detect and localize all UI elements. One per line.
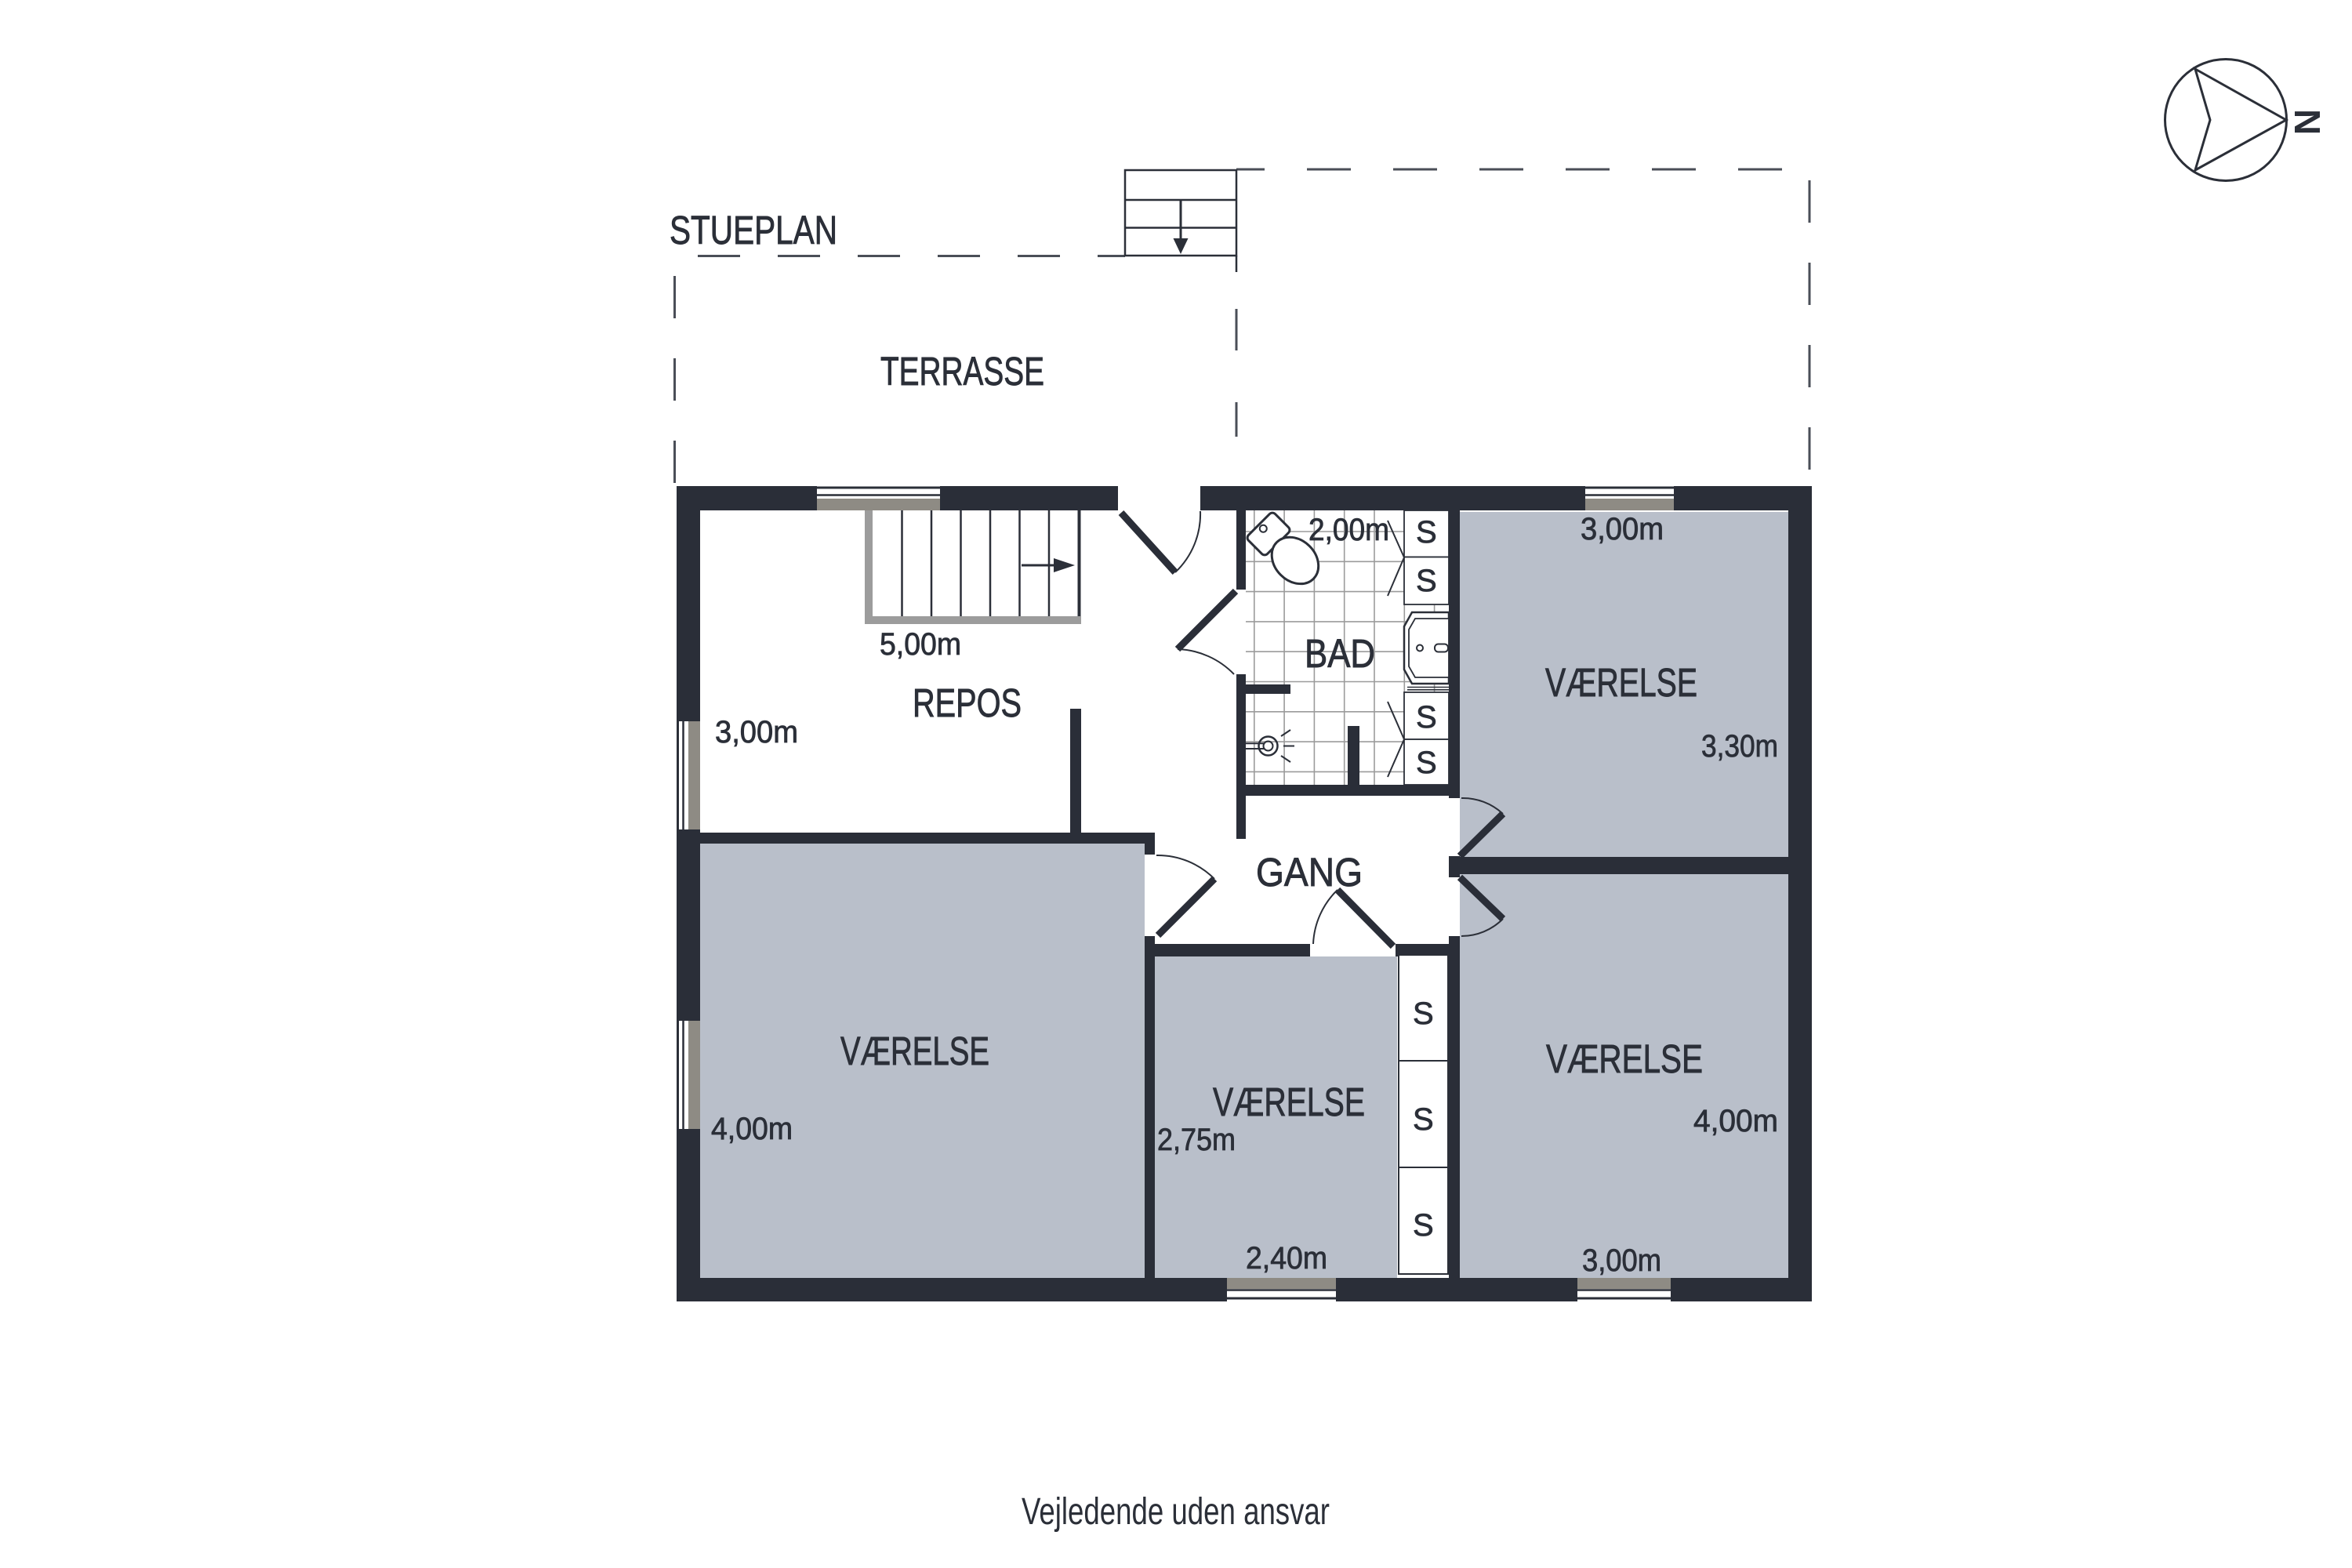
svg-text:S: S [1413, 996, 1434, 1031]
svg-text:3,00m: 3,00m [715, 715, 798, 750]
svg-text:BAD: BAD [1305, 631, 1375, 676]
svg-text:VÆRELSE: VÆRELSE [1213, 1080, 1365, 1124]
svg-text:3,00m: 3,00m [1582, 1243, 1661, 1278]
svg-text:VÆRELSE: VÆRELSE [1545, 660, 1697, 705]
svg-text:GANG: GANG [1256, 850, 1363, 895]
svg-text:S: S [1416, 700, 1437, 735]
svg-text:VÆRELSE: VÆRELSE [840, 1029, 989, 1073]
svg-text:S: S [1416, 515, 1437, 550]
svg-text:S: S [1416, 564, 1437, 598]
svg-text:3,00m: 3,00m [1581, 512, 1664, 546]
svg-text:TERRASSE: TERRASSE [880, 349, 1044, 394]
svg-text:S: S [1413, 1102, 1434, 1137]
svg-text:4,00m: 4,00m [1693, 1104, 1778, 1138]
svg-text:5,00m: 5,00m [880, 627, 961, 662]
svg-text:4,00m: 4,00m [711, 1112, 793, 1146]
svg-text:Vejledende uden ansvar: Vejledende uden ansvar [1022, 1491, 1330, 1533]
svg-text:N: N [2287, 109, 2328, 135]
svg-text:2,75m: 2,75m [1157, 1123, 1236, 1157]
svg-text:S: S [1413, 1208, 1434, 1243]
svg-text:STUEPLAN: STUEPLAN [670, 208, 837, 252]
svg-text:2,00m: 2,00m [1308, 513, 1389, 547]
svg-text:VÆRELSE: VÆRELSE [1546, 1036, 1703, 1081]
svg-text:REPOS: REPOS [913, 681, 1022, 725]
svg-text:3,30m: 3,30m [1701, 729, 1778, 764]
svg-text:S: S [1416, 746, 1437, 780]
svg-text:2,40m: 2,40m [1246, 1241, 1327, 1276]
